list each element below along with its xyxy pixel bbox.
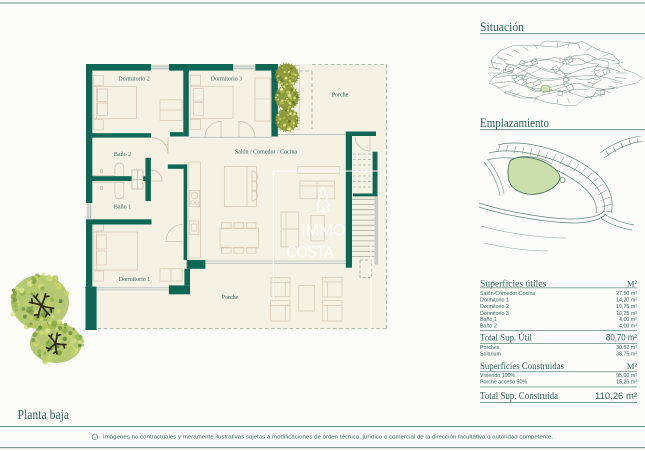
svg-text:Dormitorio 3: Dormitorio 3 bbox=[480, 311, 509, 317]
svg-text:Salón / Comedor / Cocina: Salón / Comedor / Cocina bbox=[235, 150, 298, 156]
svg-text:Baño 2: Baño 2 bbox=[480, 324, 497, 330]
svg-text:10,75 m²: 10,75 m² bbox=[616, 304, 637, 310]
svg-text:Baño 1: Baño 1 bbox=[480, 317, 497, 323]
svg-text:Dormitorio 2: Dormitorio 2 bbox=[480, 304, 509, 310]
svg-text:Dormitorio 2: Dormitorio 2 bbox=[118, 76, 150, 82]
svg-text:Solarium: Solarium bbox=[480, 351, 501, 357]
svg-text:Salón-Comedor-Cocina: Salón-Comedor-Cocina bbox=[480, 291, 535, 297]
svg-text:4,00 m²: 4,00 m² bbox=[619, 324, 637, 330]
svg-text:Porche acceso 50%: Porche acceso 50% bbox=[480, 380, 527, 386]
svg-text:Emplazamiento: Emplazamiento bbox=[480, 116, 549, 130]
svg-text:Porches: Porches bbox=[480, 345, 500, 351]
svg-text:Superficies Construidas: Superficies Construidas bbox=[480, 361, 564, 372]
svg-text:M²: M² bbox=[627, 278, 638, 288]
svg-text:80,70 m²: 80,70 m² bbox=[606, 333, 637, 343]
svg-text:110,26 m²: 110,26 m² bbox=[595, 391, 638, 402]
svg-text:Dormitorio 1: Dormitorio 1 bbox=[119, 277, 151, 283]
svg-text:Baño 1: Baño 1 bbox=[114, 205, 131, 211]
svg-text:14,20 m²: 14,20 m² bbox=[616, 298, 637, 304]
svg-text:10,25 m²: 10,25 m² bbox=[616, 311, 637, 317]
svg-text:Porche: Porche bbox=[332, 92, 349, 98]
svg-text:M²: M² bbox=[627, 361, 638, 371]
svg-text:Total Sup. Construida: Total Sup. Construida bbox=[480, 391, 558, 402]
svg-text:i: i bbox=[94, 435, 95, 440]
svg-text:Imágenes no contractuales y me: Imágenes no contractuales y meramente il… bbox=[103, 435, 554, 441]
svg-text:Dormitorio 1: Dormitorio 1 bbox=[480, 298, 509, 304]
svg-text:38,75 m²: 38,75 m² bbox=[616, 351, 637, 357]
svg-text:Vivienda 100%: Vivienda 100% bbox=[480, 373, 516, 379]
svg-text:Situación: Situación bbox=[480, 20, 525, 34]
svg-text:27,50 m²: 27,50 m² bbox=[616, 291, 637, 297]
svg-text:15,26 m²: 15,26 m² bbox=[616, 380, 637, 386]
svg-text:Planta baja: Planta baja bbox=[18, 407, 70, 422]
svg-text:IMMO: IMMO bbox=[301, 221, 346, 240]
svg-text:Baño 2: Baño 2 bbox=[114, 152, 131, 158]
svg-text:Dormitorio 3: Dormitorio 3 bbox=[211, 76, 243, 82]
svg-text:Porche: Porche bbox=[222, 295, 239, 301]
svg-text:30,52 m²: 30,52 m² bbox=[616, 345, 637, 351]
svg-text:95,00 m²: 95,00 m² bbox=[616, 373, 637, 379]
svg-text:4,00 m²: 4,00 m² bbox=[619, 317, 637, 323]
svg-text:COSTA: COSTA bbox=[287, 243, 335, 262]
svg-text:Total Sup. Útil: Total Sup. Útil bbox=[480, 332, 532, 344]
